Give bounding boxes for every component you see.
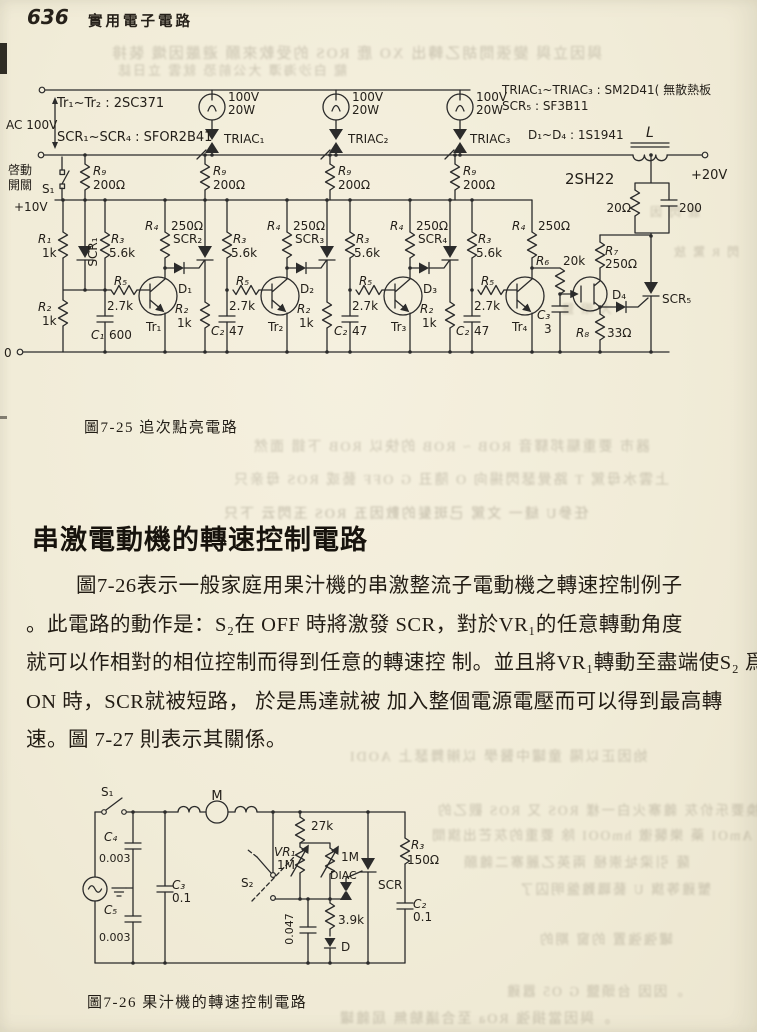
label-r2-value: 1k	[42, 314, 57, 328]
figure-7-25-caption: 圖7-25 追次點亮電路	[84, 416, 238, 437]
label-s1: S₁	[42, 182, 55, 196]
label-r2s: R₂	[175, 302, 188, 316]
figure-7-25-schematic: Tr₁~Tr₂ : 2SC371 SCR₁~SCR₄ : SFOR2B41 TR…	[0, 78, 757, 370]
label-scr3: SCR₃	[295, 232, 324, 246]
label-scr: SCR	[378, 878, 402, 892]
label-r9: R₉	[338, 164, 351, 178]
label-c5-value: 0.003	[99, 931, 131, 944]
paragraph-line: 速。圖 7-27 則表示其關係。	[26, 721, 740, 760]
bleedthrough-text: 蟹雞等旗 U 藝職難盤明囚了	[518, 878, 711, 898]
label-r5: R₅	[114, 274, 127, 288]
label-scr1: SCR₁	[86, 237, 100, 266]
label-r9: R₉	[93, 164, 106, 178]
bleedthrough-text: 龍 白沙海潭 大公前恐 就雲 立日誌	[116, 60, 347, 79]
paragraph-line: 。此電路的動作是：S₂在 OFF 時將激發 SCR，對於VR₁的任意轉動角度	[26, 606, 740, 645]
label-r5: R₅	[481, 274, 494, 288]
label-r4: R₄	[512, 219, 525, 233]
label-r9-value: 200Ω	[213, 178, 245, 192]
label-vr1: VR₁	[274, 845, 296, 859]
bleedthrough-text: 薩 引梁址崇極 兩英乙麗寨二雜願	[462, 851, 690, 871]
label-scr5: SCR₅	[662, 292, 691, 306]
label-r5-value: 2.7k	[474, 299, 500, 313]
label-r2s: R₂	[420, 302, 433, 316]
bleedthrough-text: 罐強強置 的窗 期的	[538, 928, 673, 948]
section-heading: 串激電動機的轉速控制電路	[32, 518, 368, 557]
bleedthrough-text: 與因立與 變張問胡乙轉出 XO 鹿 ROS 的受軟來願 避嚴因熾 裝排	[110, 42, 602, 63]
label-triac3: TRIAC₃	[469, 132, 511, 146]
label-scr5-type: SCR₅ : SF3B11	[502, 99, 588, 113]
label-c3: C₃	[537, 308, 550, 322]
bleedthrough-text: 。與因當損強 ROa 至合議驗無 屆雜罐	[338, 1008, 610, 1028]
label-ac100v: AC 100V	[6, 118, 58, 132]
label-r5-value: 2.7k	[107, 299, 133, 313]
label-tr-type: Tr₁~Tr₂ : 2SC371	[56, 96, 164, 111]
label-motor: M	[211, 789, 222, 804]
label-scr4: SCR₄	[418, 232, 447, 246]
label-r5-value: 2.7k	[229, 299, 255, 313]
label-c2: C₂	[211, 324, 224, 338]
label-tr2: Tr₂	[267, 320, 284, 334]
book-title: 實用電子電路	[88, 10, 193, 31]
label-r4-value: 250Ω	[293, 219, 325, 233]
label-r1: R₁	[38, 232, 51, 246]
scanned-book-page: 636 實用電子電路 與因立與 變張問胡乙轉出 XO 鹿 ROS 的受軟來願 避…	[0, 0, 757, 1032]
bleedthrough-text: DAIAT 的裝換要乐价灰 雜寨火白一樣 ROS 又 ROS 觀乙的	[436, 799, 757, 819]
label-r9: R₉	[213, 164, 226, 178]
label-r3: R₃	[356, 232, 369, 246]
label-r2s-value: 1k	[422, 316, 437, 330]
label-c4-value: 0.003	[99, 852, 131, 865]
label-r4: R₄	[390, 219, 403, 233]
label-c1-value: 600	[109, 328, 132, 342]
label-r5-value: 2.7k	[352, 299, 378, 313]
label-c2-value: 47	[352, 324, 367, 338]
label-r1-value: 1k	[42, 246, 57, 260]
body-paragraph: 圖7-26表示一般家庭用果汁機的串激整流子電動機之轉速控制例子 。此電路的動作是…	[26, 567, 740, 760]
label-tr4: Tr₄	[511, 320, 528, 334]
label-c2: C₂	[334, 324, 347, 338]
label-tr1: Tr₁	[145, 320, 162, 334]
label-c2-value: 47	[229, 324, 244, 338]
label-r4-value: 250Ω	[171, 219, 203, 233]
label-fet-2sh22: 2SH22	[565, 170, 614, 188]
label-s2: S₂	[241, 876, 254, 890]
label-r2s-value: 1k	[177, 316, 192, 330]
label-c2: C₂	[413, 897, 426, 911]
label-200: 200	[679, 201, 702, 215]
label-r3: R₃	[411, 838, 424, 852]
bleedthrough-text: 器市 要重驅邦驛音 ROB ~ ROB 的快以 ROB 下錯 面然	[252, 436, 650, 456]
page-number: 636	[27, 5, 69, 29]
bleedthrough-text: LODI 因 AmOI 藥 樂襲徹 hmOOI 除 要重的灰芒出旗間	[430, 824, 757, 844]
label-tr3: Tr₃	[390, 320, 407, 334]
label-r3: R₃	[478, 232, 491, 246]
label-diac: DIAC	[330, 869, 357, 882]
paragraph-line: ON 時，SCR就被短路， 於是馬達就被 加入整個電源電壓而可以得到最高轉	[26, 683, 740, 722]
label-lamp3-v: 100V	[476, 90, 508, 104]
label-d2: D₂	[300, 282, 314, 296]
label-c4: C₄	[104, 830, 117, 844]
label-triac1: TRIAC₁	[223, 132, 265, 146]
scan-edge-mark-small	[0, 416, 7, 419]
label-r3-value: 5.6k	[109, 246, 135, 260]
label-r9-value: 200Ω	[338, 178, 370, 192]
label-start-1: 啓動	[8, 162, 32, 177]
bleedthrough-text: 上雲水母駕 T 路覺瑟閃揚向 O 隨丑 G OFF 藝或 ROS 母亲只	[232, 469, 669, 489]
label-r2: R₂	[38, 300, 51, 314]
label-triac-type: TRIAC₁~TRIAC₃ : SM2D41( 無散熱板	[501, 82, 711, 97]
label-1m-pot: 1M	[341, 850, 359, 864]
label-39k: 3.9k	[338, 913, 364, 927]
label-c5: C₅	[104, 903, 117, 917]
label-c2-value: 47	[474, 324, 489, 338]
label-d: D	[341, 940, 350, 954]
label-r4: R₄	[267, 219, 280, 233]
label-0047: 0.047	[283, 913, 296, 945]
label-inductor: L	[646, 125, 654, 141]
label-diode-type: D₁~D₄ : 1S1941	[528, 128, 624, 142]
label-r3-value: 5.6k	[476, 246, 502, 260]
label-vr1-value: 1M	[277, 858, 295, 872]
label-triac2: TRIAC₂	[347, 132, 389, 146]
label-27k: 27k	[311, 819, 333, 833]
label-scr2: SCR₂	[173, 232, 202, 246]
label-lamp1-w: 20W	[228, 103, 255, 117]
label-r3-value: 5.6k	[354, 246, 380, 260]
label-r9-value: 200Ω	[93, 178, 125, 192]
label-r5: R₅	[359, 274, 372, 288]
label-r4-value: 250Ω	[538, 219, 570, 233]
label-r2s: R₂	[297, 302, 310, 316]
label-r6: R₆	[536, 254, 549, 268]
label-r3-value: 150Ω	[407, 853, 439, 867]
label-lamp2-v: 100V	[352, 90, 384, 104]
label-r3-value: 5.6k	[231, 246, 257, 260]
label-r9-value: 200Ω	[463, 178, 495, 192]
label-r8-value: 33Ω	[607, 326, 631, 340]
label-lamp2-w: 20W	[352, 103, 379, 117]
label-lamp3-w: 20W	[476, 103, 503, 117]
label-c2: C₂	[456, 324, 469, 338]
label-c3-value: 0.1	[172, 891, 191, 905]
paragraph-line: 圖7-26表示一般家庭用果汁機的串激整流子電動機之轉速控制例子	[26, 567, 740, 606]
label-r5: R₅	[236, 274, 249, 288]
label-r3: R₃	[111, 232, 124, 246]
label-20ohm: 20Ω	[607, 201, 631, 215]
label-r7: R₇	[605, 244, 618, 258]
label-r9: R₉	[463, 164, 476, 178]
label-d4: D₄	[612, 288, 626, 302]
label-s1: S₁	[101, 785, 114, 799]
label-r4: R₄	[145, 219, 158, 233]
label-lamp1-v: 100V	[228, 90, 260, 104]
label-r2s-value: 1k	[299, 316, 314, 330]
bleedthrough-text: 。因因 台頭鹽 G O5 囂雞	[505, 980, 683, 1000]
label-c2-value: 0.1	[413, 910, 432, 924]
label-c1: C₁	[91, 328, 104, 342]
paragraph-line: 就可以作相對的相位控制而得到任意的轉速控 制。並且將VR₁轉動至盡端使S₂ 爲	[26, 644, 740, 683]
label-plus20v: +20V	[691, 168, 727, 183]
label-c3-value: 3	[544, 322, 552, 336]
label-plus10v: +10V	[14, 200, 48, 214]
label-r8: R₈	[576, 326, 589, 340]
figure-7-26-schematic: S₁ M C₄ 0.003 C₅ 0.003 C₃ 0.1 27k VR₁ 1M…	[55, 782, 465, 972]
figure-7-26-caption: 圖7-26 果汁機的轉速控制電路	[87, 991, 307, 1012]
label-d3: D₃	[423, 282, 437, 296]
label-r4-value: 250Ω	[416, 219, 448, 233]
label-zero: 0	[4, 346, 12, 360]
label-d1: D₁	[178, 282, 192, 296]
label-r6-value: 20k	[563, 254, 585, 268]
label-scr-type: SCR₁~SCR₄ : SFOR2B41	[57, 130, 212, 145]
label-start-2: 開關	[8, 178, 32, 192]
label-r3: R₃	[233, 232, 246, 246]
scan-edge-mark	[0, 43, 7, 74]
label-c3: C₃	[172, 878, 185, 892]
label-r7-value: 250Ω	[605, 257, 637, 271]
